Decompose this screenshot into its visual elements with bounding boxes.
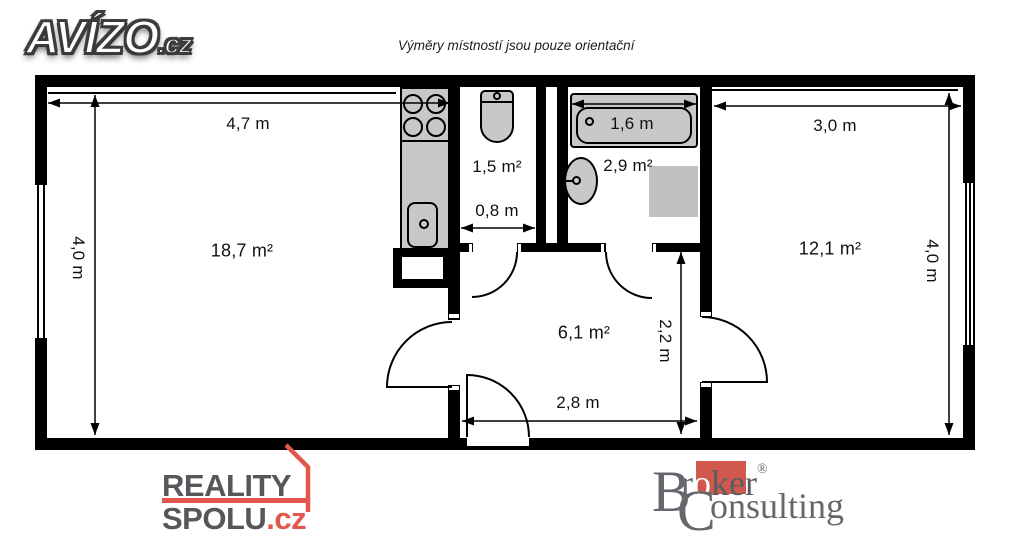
bathroom-area-label: 2,9 m² <box>603 156 652 176</box>
wc-width-label: 0,8 m <box>475 201 519 221</box>
floor-plan-page: AVÍZO.cz Výměry místností jsou pouze ori… <box>0 0 1024 553</box>
hall-depth-label: 2,2 m <box>655 319 675 363</box>
living-height-label: 4,0 m <box>68 236 88 280</box>
bathroom-door-arc <box>606 252 652 298</box>
reality-roof-icon <box>286 445 308 512</box>
living-width-label: 4,7 m <box>226 114 270 134</box>
wc-area-label: 1,5 m² <box>472 157 521 177</box>
bathtub-length-label: 1,6 m <box>610 114 654 134</box>
plan-linework <box>0 0 1024 553</box>
living-room-door-arc <box>387 322 452 387</box>
hall-width-label: 2,8 m <box>556 393 600 413</box>
wc-door-arc <box>472 252 517 297</box>
hall-area-label: 6,1 m² <box>558 323 610 344</box>
bedroom-height-label: 4,0 m <box>922 239 942 283</box>
bedroom-door-arc <box>702 317 767 382</box>
entry-door-arc <box>467 375 529 437</box>
bedroom-area-label: 12,1 m² <box>799 239 861 260</box>
bedroom-width-label: 3,0 m <box>813 116 857 136</box>
living-room-area-label: 18,7 m² <box>211 241 273 262</box>
